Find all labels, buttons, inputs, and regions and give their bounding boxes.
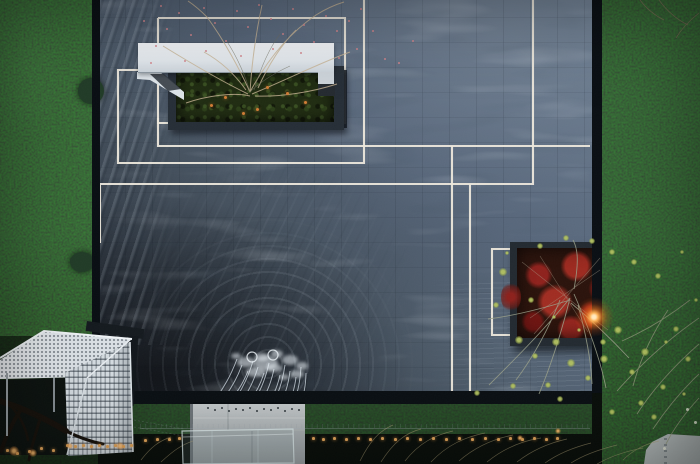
film-grain <box>0 0 700 464</box>
courtyard-aerial-scene <box>0 0 700 464</box>
